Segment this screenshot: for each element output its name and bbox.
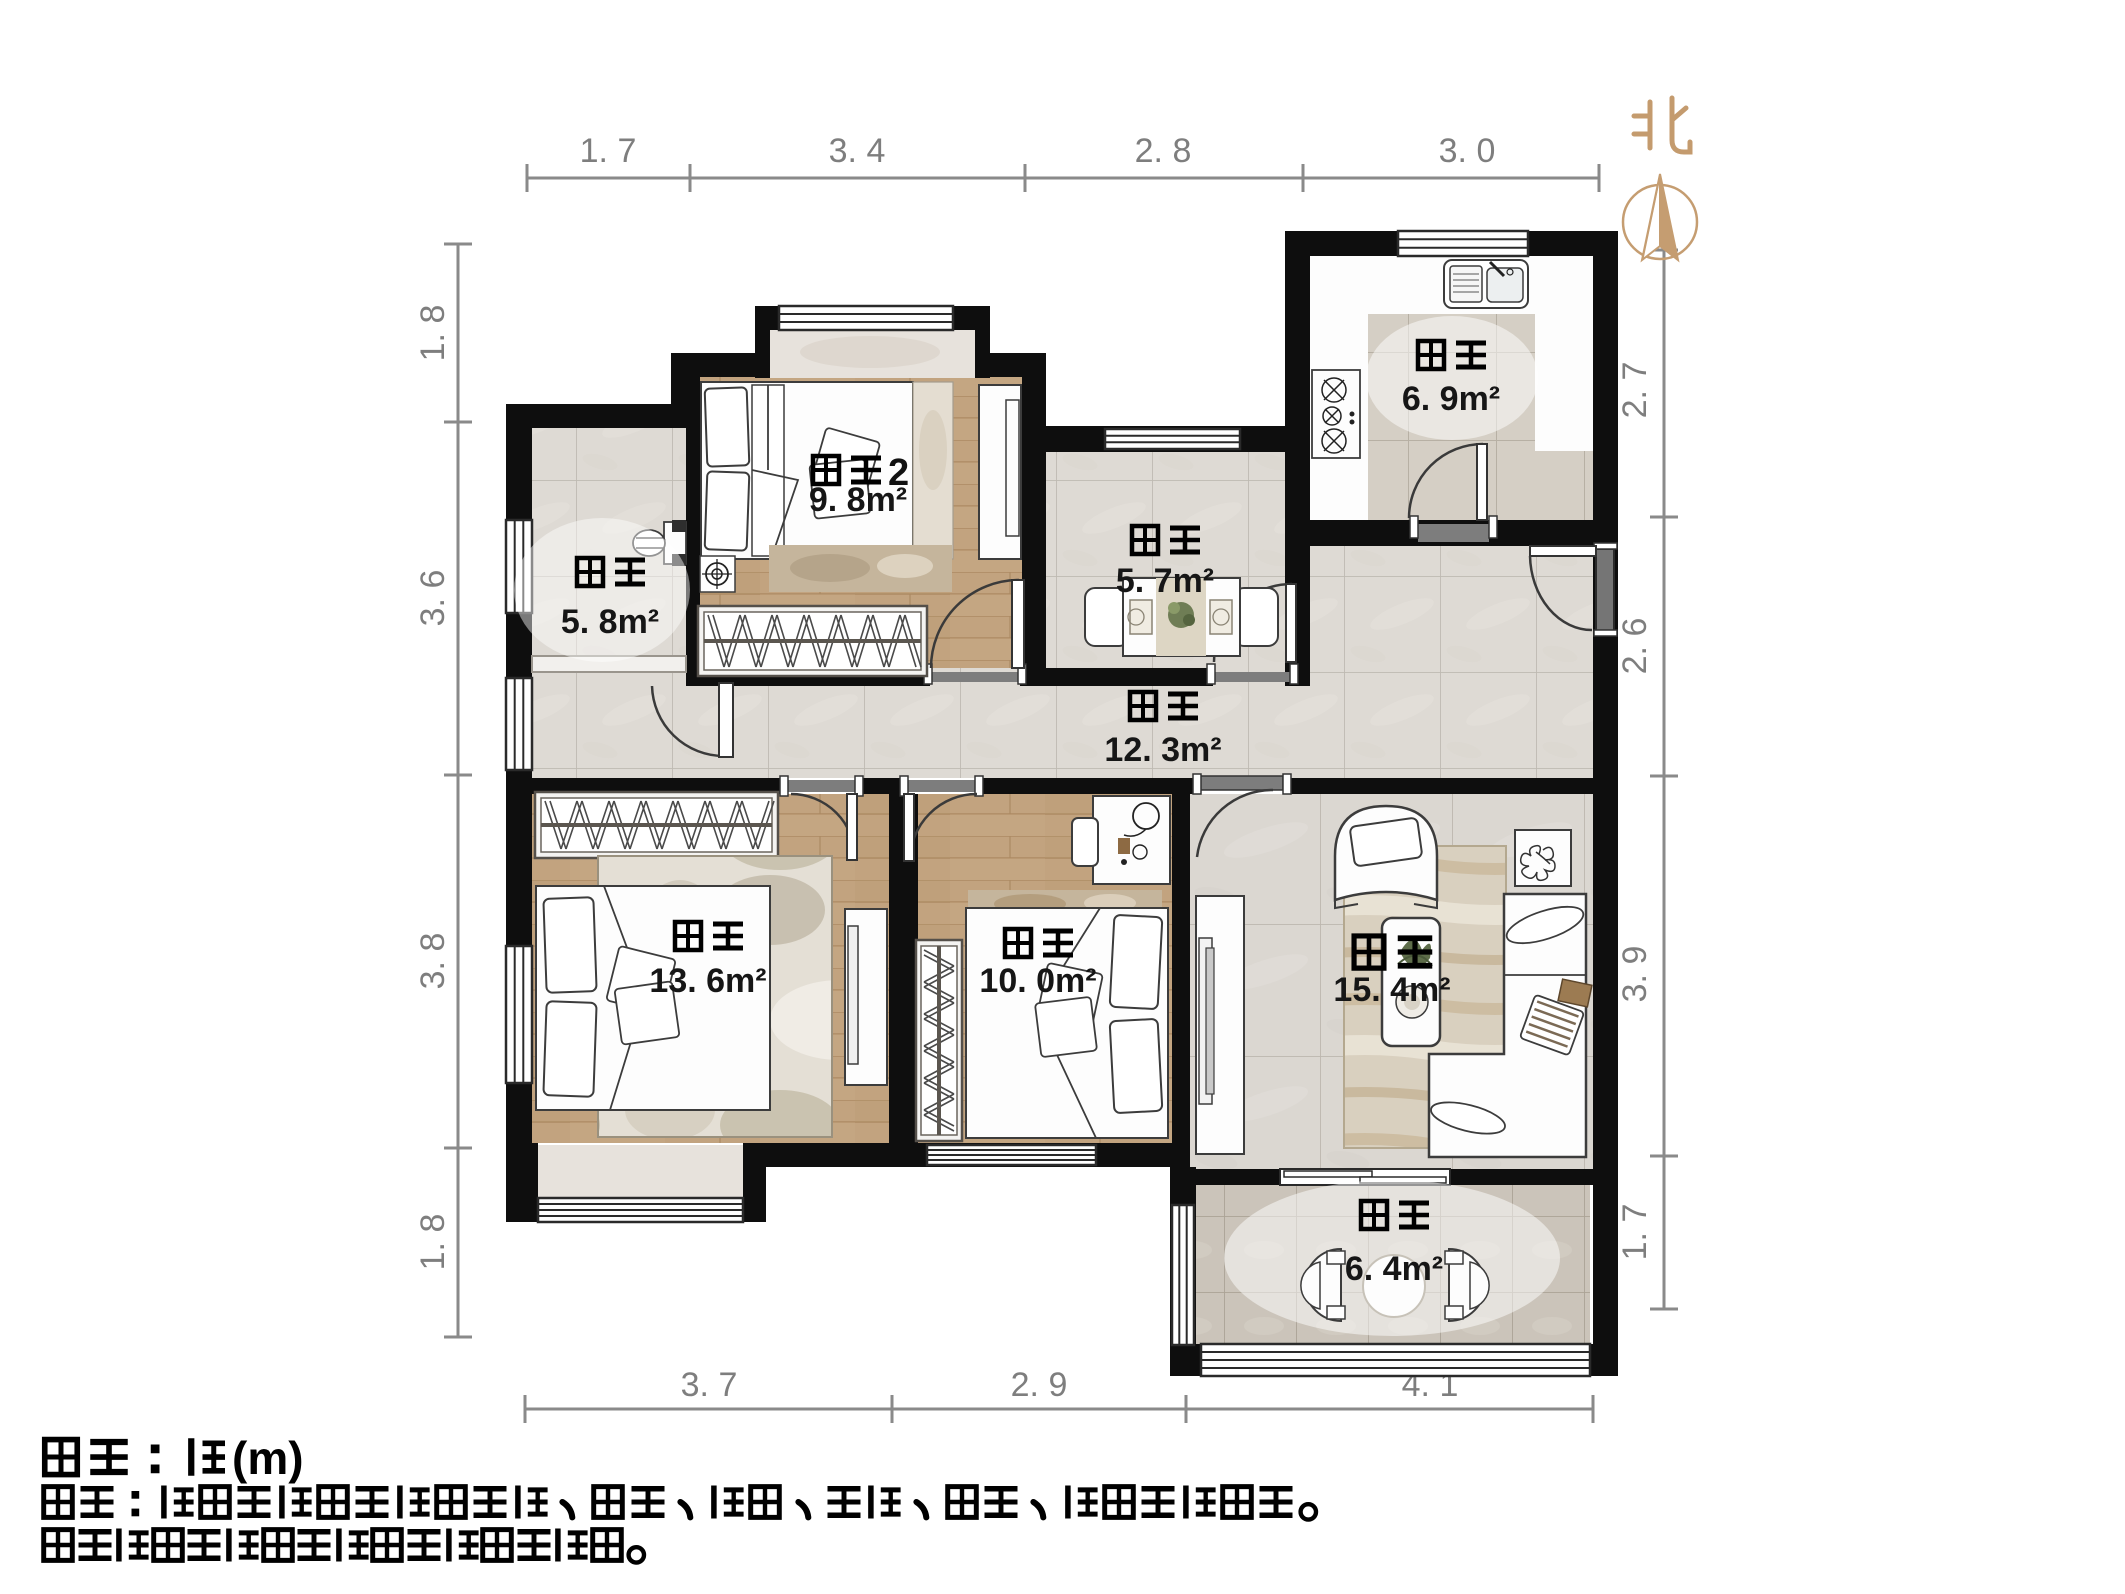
svg-text:(m): (m) xyxy=(232,1432,304,1484)
svg-text:3. 7: 3. 7 xyxy=(681,1366,738,1404)
svg-text:9. 8m²: 9. 8m² xyxy=(809,481,907,519)
svg-text:3. 9: 3. 9 xyxy=(1616,946,1654,1003)
svg-text:3. 8: 3. 8 xyxy=(414,933,452,990)
svg-text:2. 9: 2. 9 xyxy=(1011,1366,1068,1404)
svg-text:2. 7: 2. 7 xyxy=(1616,362,1654,419)
svg-text:3. 4: 3. 4 xyxy=(829,132,886,170)
svg-text:3. 6: 3. 6 xyxy=(414,570,452,627)
svg-text:5. 8m²: 5. 8m² xyxy=(561,603,659,641)
svg-text:1. 7: 1. 7 xyxy=(1616,1204,1654,1261)
svg-text:6. 4m²: 6. 4m² xyxy=(1345,1250,1443,1288)
svg-text:6. 9m²: 6. 9m² xyxy=(1402,380,1500,418)
svg-text:5. 7m²: 5. 7m² xyxy=(1116,562,1214,600)
svg-text:10. 0m²: 10. 0m² xyxy=(979,962,1096,1000)
svg-text:1. 8: 1. 8 xyxy=(414,1214,452,1271)
svg-text:1. 8: 1. 8 xyxy=(414,305,452,362)
svg-text:2. 8: 2. 8 xyxy=(1135,132,1192,170)
svg-text:12. 3m²: 12. 3m² xyxy=(1104,731,1221,769)
svg-text:1. 7: 1. 7 xyxy=(580,132,637,170)
svg-text:3. 0: 3. 0 xyxy=(1439,132,1496,170)
svg-text:13. 6m²: 13. 6m² xyxy=(649,962,766,1000)
svg-text:2. 6: 2. 6 xyxy=(1616,618,1654,675)
svg-text:15. 4m²: 15. 4m² xyxy=(1333,971,1450,1009)
